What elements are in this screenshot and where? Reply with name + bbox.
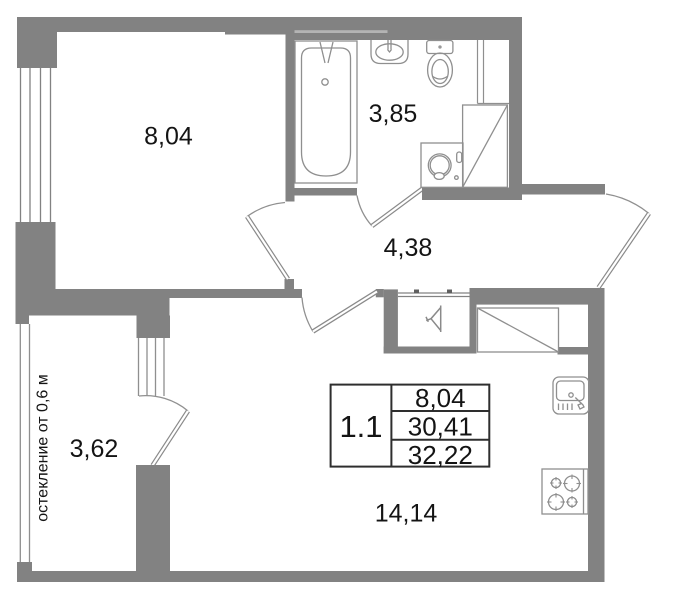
- svg-text:8,04: 8,04: [144, 123, 193, 151]
- svg-text:8,04: 8,04: [415, 383, 466, 413]
- svg-text:4,38: 4,38: [384, 234, 433, 262]
- svg-text:остекление от 0,6 м: остекление от 0,6 м: [35, 374, 52, 521]
- svg-text:14,14: 14,14: [375, 500, 438, 528]
- svg-text:32,22: 32,22: [408, 440, 473, 470]
- svg-text:3,85: 3,85: [369, 100, 418, 128]
- svg-text:3,62: 3,62: [70, 435, 119, 463]
- svg-text:1.1: 1.1: [339, 409, 382, 444]
- svg-text:30,41: 30,41: [408, 412, 473, 442]
